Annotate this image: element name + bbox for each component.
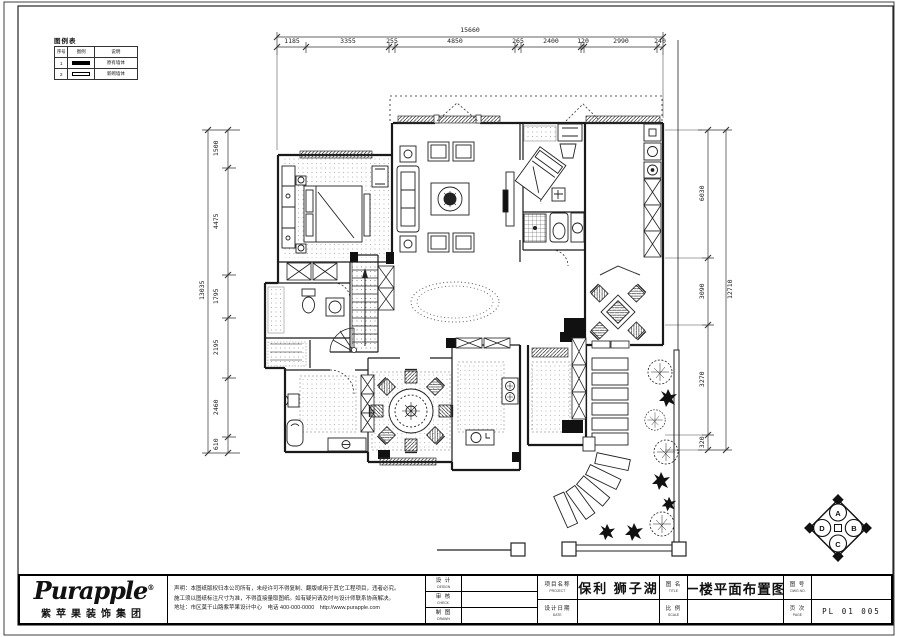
- dim-top-seg: 265: [500, 38, 536, 45]
- dim-right-seg: 3090: [699, 273, 706, 309]
- dim-right-seg: 3270: [699, 361, 706, 397]
- company-logo: Purapple® 紫苹果装饰集团: [20, 576, 168, 623]
- legend-header-symbol: 图例: [68, 47, 94, 58]
- company-name-cn: 紫苹果装饰集团: [41, 605, 146, 620]
- drawing-title-cell: 一楼平面布置图: [688, 576, 784, 623]
- dim-top-seg: 4850: [437, 38, 473, 45]
- toilet: [303, 297, 315, 313]
- floor-plan-svg: [0, 0, 898, 637]
- legend-row: 2 新砌墙体: [55, 69, 138, 80]
- dining-furniture: [370, 370, 453, 453]
- project-label-column: 项目名称PROJECT 设计日期DATE: [538, 576, 578, 623]
- sheet-border: [4, 2, 894, 635]
- dim-left-seg: 2195: [213, 329, 220, 365]
- drawing-title: 一楼平面布置图: [688, 578, 783, 598]
- logo-text: Purapple: [34, 576, 148, 605]
- dim-top-seg: 2400: [533, 38, 569, 45]
- dim-top-seg: 3355: [330, 38, 366, 45]
- compass-symbol: [805, 495, 871, 561]
- bedroom2-furniture: [515, 124, 584, 242]
- dim-top-seg: 120: [565, 38, 601, 45]
- compass-letter-c: C: [832, 540, 844, 549]
- dim-top-total: 15660: [440, 27, 500, 34]
- legend-row: 1 原有墙体: [55, 58, 138, 69]
- tv: [503, 190, 508, 212]
- legend-header-desc: 说明: [94, 47, 137, 58]
- dim-left-seg: 2460: [213, 389, 220, 425]
- sheet-number: PL 01 005: [822, 607, 881, 616]
- solid-wall-symbol: [72, 61, 90, 65]
- title-block: Purapple® 紫苹果装饰集团 声明：本图纸版权归本公司所有，未经许可不得复…: [18, 574, 893, 625]
- compass-letter-b: B: [848, 524, 860, 533]
- dim-left-seg: 1795: [213, 278, 220, 314]
- dim-top-seg: 2990: [603, 38, 639, 45]
- hollow-wall-symbol: [72, 72, 90, 76]
- dim-right-seg: 320: [699, 424, 706, 460]
- dim-left-seg: 1500: [213, 130, 220, 166]
- compass-letter-a: A: [832, 509, 844, 518]
- disclaimer: 声明：本图纸版权归本公司所有，未经许可不得复制、翻版或用于其它工程项目，违者必究…: [168, 576, 426, 623]
- compass-letter-d: D: [816, 524, 828, 533]
- dim-left-seg: 610: [213, 426, 220, 462]
- registered-mark: ®: [147, 583, 153, 592]
- legend-table: 图例表 序号 图例 说明 1 原有墙体 2 新砌墙体: [54, 35, 142, 80]
- living-room-furniture: [397, 142, 514, 252]
- dim-right-total: 12710: [727, 271, 734, 307]
- project-name-cell: 保利 狮子湖: [578, 576, 660, 623]
- sheet-number-cell: PL 01 005: [812, 576, 891, 623]
- garden-plants: [599, 360, 678, 541]
- disclaimer-line: 地址：市区莫干山路紫苹果设计中心 电话 400-000-0000 http://…: [174, 604, 419, 614]
- drawing-sheet: 图例表 序号 图例 说明 1 原有墙体 2 新砌墙体 15660 1185 33…: [0, 0, 898, 637]
- signature-column: 设 计DESIGN 审 核CHECK 制 图DRAWN: [426, 576, 462, 623]
- legend-title: 图例表: [54, 35, 142, 45]
- legend-header-no: 序号: [55, 47, 68, 58]
- project-name: 保利 狮子湖: [578, 578, 659, 597]
- disclaimer-line: 声明：本图纸版权归本公司所有，未经许可不得复制、翻版或用于其它工程项目，违者必究…: [174, 585, 419, 595]
- dim-right-seg: 6030: [699, 175, 706, 211]
- patio-table: [601, 295, 635, 329]
- signature-fill-column: [462, 576, 538, 623]
- dim-top-seg: 255: [374, 38, 410, 45]
- dim-top-seg: 1185: [274, 38, 310, 45]
- title-label-column: 图 名TITLE 比 例SCALE: [660, 576, 688, 623]
- dim-top-seg: 240: [642, 38, 678, 45]
- dim-left-total: 13035: [199, 272, 206, 308]
- sink: [329, 301, 341, 313]
- number-label-column: 图 号DWG NO. 页 次PAGE: [784, 576, 812, 623]
- dim-left-seg: 4475: [213, 203, 220, 239]
- disclaimer-line: 施工须以图纸标注尺寸为准，不得直接量取图纸。如有疑问请及时与设计师联系协商解决。: [174, 595, 419, 605]
